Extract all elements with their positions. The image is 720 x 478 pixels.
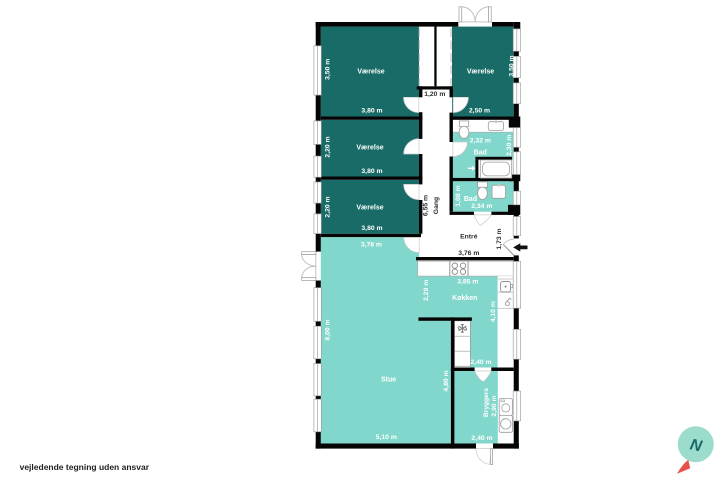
svg-text:2,40 m: 2,40 m (471, 435, 492, 442)
svg-text:Bad: Bad (474, 149, 487, 156)
svg-text:1,08 m: 1,08 m (455, 185, 462, 206)
svg-text:Bryggers: Bryggers (483, 388, 490, 417)
svg-text:3,50 m: 3,50 m (324, 59, 331, 80)
svg-text:Værelse: Værelse (467, 69, 494, 76)
svg-text:2,90 m: 2,90 m (491, 395, 498, 416)
svg-text:2,30 m: 2,30 m (506, 135, 513, 156)
svg-text:2,20 m: 2,20 m (324, 136, 331, 157)
svg-text:Værelse: Værelse (356, 205, 383, 212)
svg-text:4,80 m: 4,80 m (443, 370, 450, 391)
svg-text:2,34 m: 2,34 m (471, 203, 492, 210)
svg-text:4,10 m: 4,10 m (490, 301, 497, 322)
svg-text:Gang: Gang (433, 197, 440, 214)
svg-text:Entré: Entré (460, 233, 478, 240)
svg-text:vejledende tegning uden ansvar: vejledende tegning uden ansvar (20, 462, 150, 472)
svg-text:3,80 m: 3,80 m (361, 107, 382, 114)
svg-text:3,80 m: 3,80 m (361, 225, 382, 232)
svg-text:1,73 m: 1,73 m (496, 228, 503, 249)
svg-text:5,10 m: 5,10 m (376, 434, 397, 441)
svg-text:Værelse: Værelse (356, 145, 383, 152)
svg-text:6,55 m: 6,55 m (423, 195, 430, 216)
svg-text:1,20 m: 1,20 m (424, 91, 445, 98)
svg-text:2,40 m: 2,40 m (470, 359, 491, 366)
svg-text:Værelse: Værelse (357, 69, 384, 76)
svg-text:Stue: Stue (381, 376, 396, 383)
svg-text:2,32 m: 2,32 m (470, 138, 491, 145)
svg-text:3,85 m: 3,85 m (457, 278, 478, 285)
svg-text:8,00 m: 8,00 m (324, 319, 331, 340)
svg-text:2,50 m: 2,50 m (469, 107, 490, 114)
svg-text:3,76 m: 3,76 m (458, 250, 479, 257)
svg-text:3,50 m: 3,50 m (509, 55, 516, 76)
svg-text:2,29 m: 2,29 m (423, 280, 430, 301)
svg-text:2,20 m: 2,20 m (324, 196, 331, 217)
svg-text:Køkken: Køkken (452, 295, 477, 302)
svg-text:3,78 m: 3,78 m (361, 242, 382, 249)
svg-text:3,80 m: 3,80 m (361, 168, 382, 175)
